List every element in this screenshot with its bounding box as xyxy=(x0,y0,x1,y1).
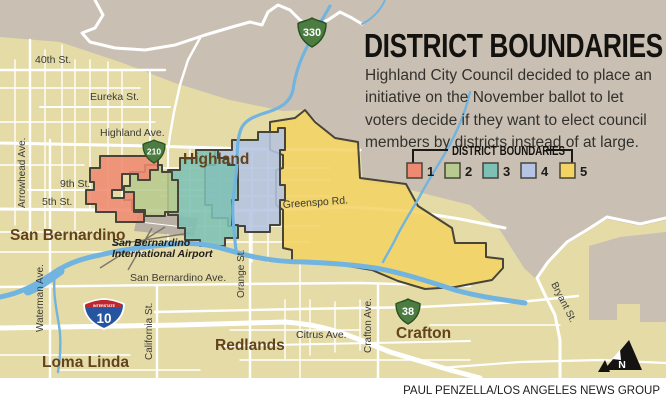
district-boundaries-map-graphic: 40th St. Eureka St. Highland Ave. 9th St… xyxy=(0,0,666,400)
north-arrow-label: N xyxy=(618,359,626,371)
label-city-loma-linda: Loma Linda xyxy=(42,354,129,371)
credit-line: PAUL PENZELLA/LOS ANGELES NEWS GROUP xyxy=(403,385,660,397)
legend-title: DISTRICT BOUNDARIES xyxy=(452,145,565,158)
label-highland-ave: Highland Ave. xyxy=(100,127,165,139)
label-city-crafton: Crafton xyxy=(396,325,451,342)
page-title: DISTRICT BOUNDARIES xyxy=(364,28,663,64)
map-canvas: 40th St. Eureka St. Highland Ave. 9th St… xyxy=(0,0,666,400)
legend-swatch-5 xyxy=(560,163,575,178)
description-line-3: voters decide if they want to elect coun… xyxy=(365,112,647,129)
label-city-highland: Highland xyxy=(183,151,249,168)
label-arrowhead-ave: Arrowhead Ave. xyxy=(17,138,28,208)
label-citrus-ave: Citrus Ave. xyxy=(296,329,347,341)
label-city-san-bernardino: San Bernardino xyxy=(10,227,125,244)
label-eureka-st: Eureka St. xyxy=(90,91,139,103)
airport-label-line2: International Airport xyxy=(112,248,213,260)
label-40th-st: 40th St. xyxy=(35,54,71,66)
legend-label-3: 3 xyxy=(503,164,510,179)
label-city-redlands: Redlands xyxy=(215,337,285,354)
route-38-number: 38 xyxy=(402,306,414,318)
description-line-2: initiative on the November ballot to let xyxy=(365,89,624,106)
legend-label-1: 1 xyxy=(427,164,434,179)
label-waterman-ave: Waterman Ave. xyxy=(35,264,46,332)
legend-swatch-4 xyxy=(521,163,536,178)
legend-label-4: 4 xyxy=(541,164,549,179)
interstate-10-number: 10 xyxy=(96,311,111,326)
label-5th-st: 5th St. xyxy=(42,196,72,208)
interstate-banner-label: INTERSTATE xyxy=(93,304,116,308)
legend-items: 1 2 3 4 5 xyxy=(407,163,587,179)
label-san-bernardino-ave: San Bernardino Ave. xyxy=(130,272,226,284)
legend-swatch-3 xyxy=(483,163,498,178)
label-9th-st: 9th St. xyxy=(60,178,90,190)
description-line-1: Highland City Council decided to place a… xyxy=(365,67,652,84)
label-crafton-ave: Crafton Ave. xyxy=(363,298,374,353)
legend-label-5: 5 xyxy=(580,164,587,179)
legend-swatch-1 xyxy=(407,163,422,178)
route-330-number: 330 xyxy=(303,27,321,39)
route-210-number: 210 xyxy=(147,147,161,157)
label-california-st: California St. xyxy=(144,303,155,360)
legend-swatch-2 xyxy=(445,163,460,178)
label-orange-st: Orange St. xyxy=(236,250,247,298)
legend-label-2: 2 xyxy=(465,164,472,179)
